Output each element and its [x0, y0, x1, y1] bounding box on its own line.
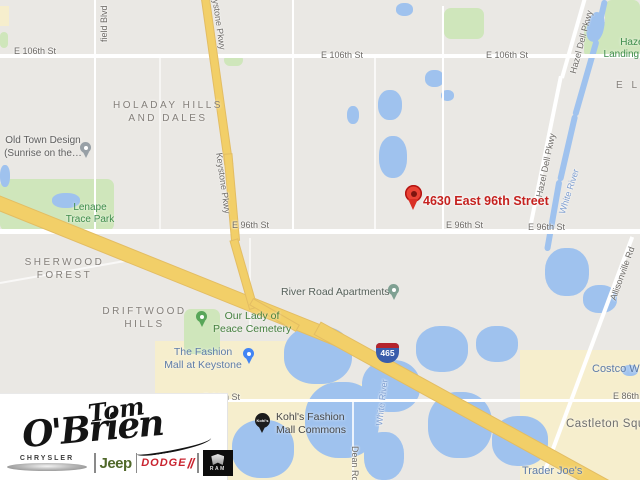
- road-minor: [292, 0, 294, 231]
- poi-river-road-apartments[interactable]: River Road Apartments: [281, 286, 390, 299]
- water-pond: [378, 90, 402, 120]
- jeep-logo: Jeep: [100, 455, 132, 472]
- park-area: [444, 8, 484, 39]
- poi-line: (Sunrise on the…: [0, 148, 86, 161]
- chrysler-logo: CHRYSLER: [4, 455, 90, 471]
- poi-line: Mall Commons: [276, 424, 366, 437]
- water-wetland: [416, 326, 468, 372]
- park-label-line: Hazel: [583, 37, 640, 49]
- street-label-e96th: E 96th St: [446, 220, 483, 230]
- road-e-86th-st: [198, 399, 640, 402]
- neighborhood-line: FOREST: [12, 269, 117, 282]
- street-label-hazel-dell: Hazel Dell Pkwy: [534, 132, 557, 198]
- kohls-marker-text: Kohl's: [256, 418, 268, 423]
- water-pond: [396, 3, 413, 16]
- poi-line: Our Lady of: [213, 310, 291, 323]
- dodge-slashes-icon: //: [188, 455, 194, 471]
- street-label-e106th: E 106th St: [321, 50, 363, 60]
- cemetery-pin-icon[interactable]: [196, 311, 207, 322]
- poi-castleton-square[interactable]: Castleton Square: [566, 418, 640, 431]
- ram-logo: RAM: [203, 450, 233, 476]
- poi-line: Kohl's Fashion: [276, 411, 366, 424]
- interstate-465-shield: 465: [376, 343, 399, 363]
- neighborhood-holaday-hills: HOLADAY HILLS AND DALES: [98, 99, 238, 125]
- chrysler-wordmark: CHRYSLER: [20, 455, 74, 462]
- brand-divider: [136, 453, 138, 473]
- poi-kohls-fashion-mall-commons[interactable]: Kohl's Fashion Mall Commons: [276, 411, 366, 436]
- road-minor: [94, 0, 96, 231]
- road-minor: [374, 56, 376, 231]
- park-label-hazel-landing[interactable]: Hazel Landing Park: [583, 37, 640, 61]
- neighborhood-line: HILLS: [92, 318, 197, 331]
- park-area: [605, 0, 640, 40]
- river-road-pin-icon[interactable]: [388, 284, 399, 295]
- road-e-106th-st: [0, 54, 640, 58]
- brand-logo-row: CHRYSLER Jeep DODGE// RAM: [4, 450, 233, 476]
- poi-line: Peace Cemetery: [213, 323, 291, 336]
- water-lake: [379, 136, 407, 178]
- park-label-lenape-trace[interactable]: Lenape Trace Park: [52, 202, 128, 226]
- poi-trader-joes[interactable]: Trader Joe's: [522, 465, 582, 478]
- park-label-line: Trace Park: [52, 214, 128, 226]
- water-pond: [0, 165, 10, 187]
- neighborhood-driftwood-hills: DRIFTWOOD HILLS: [92, 305, 197, 331]
- kohls-marker-icon[interactable]: Kohl's: [255, 413, 270, 428]
- street-label-allisonville: Allisonville Rd: [608, 245, 637, 301]
- dealer-logo-panel: Tom O'Brien CHRYSLER Jeep DODGE// RAM: [0, 393, 228, 480]
- poi-our-lady-of-peace[interactable]: Our Lady of Peace Cemetery: [213, 310, 291, 335]
- poi-costco[interactable]: Costco Wholesale: [592, 363, 640, 376]
- street-label-field-blvd: field Blvd: [99, 5, 109, 42]
- neighborhood-line: DRIFTWOOD: [92, 305, 197, 318]
- neighborhood-line: E L: [616, 79, 640, 92]
- street-label-e96th: E 96th St: [528, 222, 565, 232]
- shopping-pin-icon[interactable]: [243, 348, 254, 359]
- neighborhood-line: SHERWOOD: [12, 256, 117, 269]
- street-label-e106th: E 106th St: [14, 46, 56, 56]
- park-label-line: Lenape: [52, 202, 128, 214]
- brand-divider: [197, 453, 199, 473]
- road-minor: [159, 56, 161, 231]
- neighborhood-line: AND DALES: [98, 112, 238, 125]
- brand-divider: [94, 453, 96, 473]
- street-label-dean-rd: Dean Rd: [350, 446, 360, 480]
- interstate-465-number: 465: [376, 349, 399, 358]
- dodge-wordmark: DODGE: [141, 457, 186, 469]
- poi-fashion-mall[interactable]: The Fashion Mall at Keystone: [161, 346, 245, 371]
- water-wetland: [364, 432, 404, 480]
- commercial-zone: [0, 6, 9, 26]
- street-label-e106th: E 106th St: [486, 50, 528, 60]
- neighborhood-sherwood-forest: SHERWOOD FOREST: [12, 256, 117, 282]
- ram-head-icon: [211, 454, 224, 465]
- park-area: [0, 32, 8, 48]
- poi-line: Old Town Design: [0, 135, 86, 148]
- water-lake: [545, 248, 589, 296]
- park-label-line: Landing Park: [583, 49, 640, 61]
- ram-wordmark: RAM: [210, 466, 226, 472]
- chrysler-wing-icon: [7, 463, 87, 471]
- destination-label[interactable]: 4630 East 96th Street: [423, 194, 549, 208]
- neighborhood-partial: E L: [616, 79, 640, 92]
- street-label-e96th: E 96th St: [232, 220, 269, 230]
- map-canvas[interactable]: 465 E 106th St E 106th St E 106th St E 9…: [0, 0, 640, 480]
- water-pond: [347, 106, 359, 124]
- old-town-pin-icon[interactable]: [80, 142, 91, 153]
- water-wetland: [476, 326, 518, 362]
- white-river-segment: [544, 180, 562, 252]
- poi-old-town-design[interactable]: Old Town Design (Sunrise on the…: [0, 135, 86, 160]
- poi-line: Mall at Keystone: [161, 359, 245, 372]
- poi-line: The Fashion: [161, 346, 245, 359]
- neighborhood-line: HOLADAY HILLS: [98, 99, 238, 112]
- street-label-e86th: E 86th St: [613, 391, 640, 401]
- destination-pin-icon[interactable]: [405, 185, 422, 202]
